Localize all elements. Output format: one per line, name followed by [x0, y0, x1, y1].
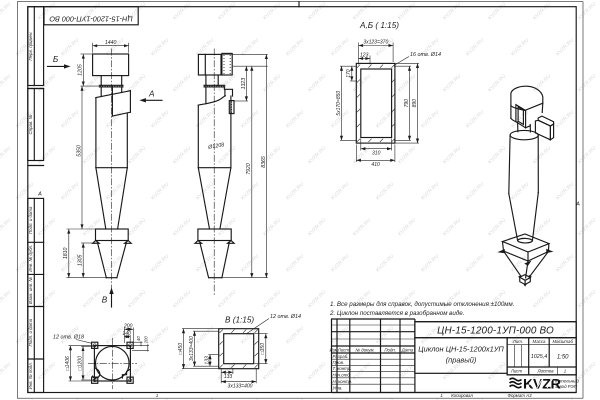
- svg-text:Т. контр.: Т. контр.: [333, 366, 352, 371]
- svg-text:Справ. №: Справ. №: [28, 114, 33, 134]
- svg-text:200: 200: [123, 324, 133, 330]
- svg-text:12 отв. Ø18: 12 отв. Ø18: [53, 335, 84, 341]
- svg-text:3х133=400: 3х133=400: [228, 383, 253, 389]
- svg-text:Циклон ЦН-15-1200х1УП: Циклон ЦН-15-1200х1УП: [418, 344, 504, 353]
- svg-text:8365: 8365: [261, 156, 267, 168]
- svg-text:200: 200: [143, 336, 148, 345]
- svg-text:В: В: [102, 296, 108, 305]
- svg-text:Масштаб: Масштаб: [552, 339, 573, 344]
- svg-text:133: 133: [224, 374, 233, 380]
- svg-text:140: 140: [122, 331, 131, 337]
- svg-text:Лист: Лист: [510, 369, 523, 374]
- svg-text:5х170=850: 5х170=850: [336, 91, 342, 116]
- svg-text:Лит.: Лит.: [512, 339, 523, 344]
- svg-text:ЦН-15-1200-1УП-000 ВО: ЦН-15-1200-1УП-000 ВО: [437, 325, 554, 336]
- svg-text:Перв. примен.: Перв. примен.: [28, 31, 33, 60]
- svg-text:Взам. инв. №: Взам. инв. №: [28, 277, 33, 304]
- svg-text:1. Все размеры для справок, до: 1. Все размеры для справок, допустимые о…: [330, 301, 515, 308]
- svg-text:7920: 7920: [246, 163, 252, 175]
- svg-text:Инв. № подл.: Инв. № подл.: [28, 362, 33, 389]
- svg-text:5350: 5350: [76, 145, 82, 157]
- svg-text:Б: Б: [53, 55, 59, 64]
- svg-text:Формат А3: Формат А3: [507, 393, 532, 398]
- svg-text:Листов: Листов: [537, 369, 555, 374]
- svg-text:890: 890: [412, 99, 418, 108]
- svg-text:(правый): (правый): [446, 356, 477, 365]
- svg-text:Подп. и дата: Подп. и дата: [28, 206, 33, 234]
- svg-text:Н. контр.: Н. контр.: [333, 379, 353, 384]
- svg-text:1:50: 1:50: [557, 355, 569, 361]
- svg-text:133: 133: [204, 356, 210, 365]
- svg-text:123: 123: [360, 53, 369, 59]
- svg-text:□1406: □1406: [65, 356, 71, 370]
- svg-text:□1200: □1200: [77, 356, 83, 370]
- svg-text:1440: 1440: [105, 40, 117, 46]
- svg-text:□350: □350: [260, 343, 266, 355]
- svg-text:А: А: [575, 202, 580, 208]
- svg-text:790: 790: [404, 99, 410, 108]
- svg-text:Подп.: Подп.: [384, 348, 396, 353]
- svg-text:ЦН-15-1200-1УП-000 ВО: ЦН-15-1200-1УП-000 ВО: [49, 14, 133, 23]
- svg-text:А,Б ( 1:15): А,Б ( 1:15): [359, 21, 399, 30]
- svg-text:2. Циклон поставляется в разоб: 2. Циклон поставляется в разобранном вид…: [329, 310, 464, 317]
- svg-text:1305: 1305: [78, 254, 84, 266]
- svg-text:Дата: Дата: [401, 348, 414, 353]
- svg-text:А: А: [37, 192, 42, 198]
- svg-text:40: 40: [136, 336, 141, 341]
- svg-text:1025,4: 1025,4: [531, 354, 548, 360]
- svg-text:Пров.: Пров.: [333, 360, 345, 365]
- svg-text:3х133=400: 3х133=400: [189, 336, 195, 361]
- svg-text:Котельный: Котельный: [555, 378, 579, 383]
- svg-text:□450: □450: [178, 343, 184, 355]
- svg-text:1810: 1810: [63, 247, 69, 259]
- svg-text:№ докум.: № докум.: [355, 348, 374, 353]
- svg-text:170: 170: [346, 69, 352, 78]
- svg-text:Разраб.: Разраб.: [333, 354, 349, 359]
- svg-text:410: 410: [371, 162, 380, 168]
- svg-text:Нач.отд.: Нач.отд.: [333, 373, 352, 378]
- svg-text:3х123=370: 3х123=370: [363, 40, 388, 46]
- svg-text:В (1:15): В (1:15): [225, 316, 254, 325]
- svg-text:1: 1: [156, 393, 159, 398]
- svg-text:Копировал: Копировал: [451, 393, 473, 398]
- svg-text:А: А: [148, 89, 155, 98]
- svg-text:Масса: Масса: [533, 339, 547, 344]
- svg-text:16 отв. Ø14: 16 отв. Ø14: [410, 52, 441, 58]
- svg-text:Лист: Лист: [337, 348, 350, 353]
- svg-text:завод РЭП: завод РЭП: [554, 384, 578, 389]
- svg-text:Инв. № дубл.: Инв. № дубл.: [28, 245, 33, 272]
- svg-text:12 отв. Ø14: 12 отв. Ø14: [270, 314, 301, 320]
- svg-text:Подп. и дата: Подп. и дата: [28, 318, 33, 346]
- svg-text:1323: 1323: [241, 78, 247, 90]
- svg-text:Утв.: Утв.: [333, 385, 343, 390]
- svg-text:1205: 1205: [78, 64, 84, 76]
- svg-text:310: 310: [372, 150, 381, 156]
